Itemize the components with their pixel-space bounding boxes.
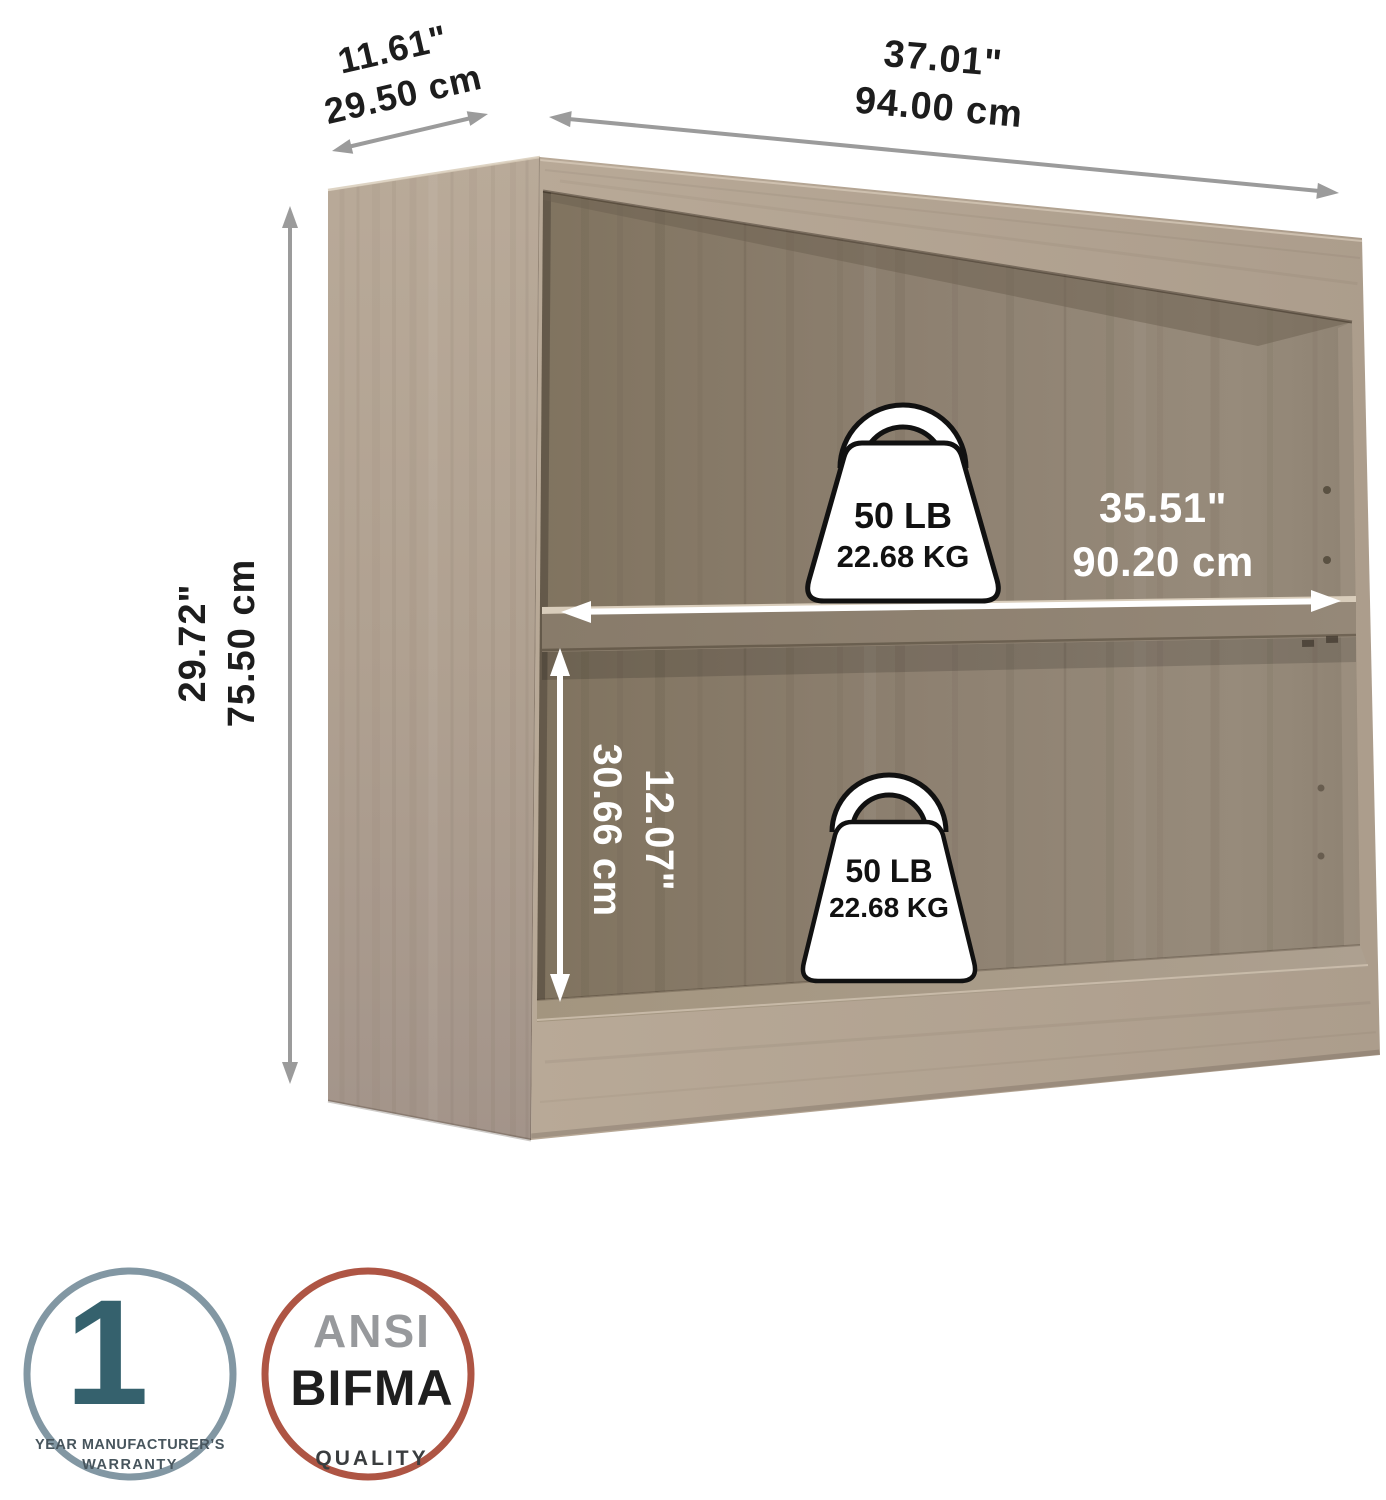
warranty-line2: WARRANTY [82,1455,178,1475]
warranty-line1: YEAR MANUFACTURER’S [35,1435,225,1455]
height-arrow [282,206,298,1084]
shelf-opening-height-label: 12.07" 30.66 cm [581,743,685,916]
shelf-opening-height-cm: 30.66 cm [581,743,633,916]
side-panel [328,140,540,1160]
warranty-number: 1 [65,1277,148,1427]
upper-shelf-capacity-label: 50 LB 22.68 KG [837,495,970,577]
quality-label: QUALITY [315,1447,428,1471]
lower-capacity-pounds: 50 LB [829,852,949,890]
shelf-width-cm: 90.20 cm [1072,535,1253,589]
width-dimension-label: 37.01" 94.00 cm [853,28,1029,140]
upper-capacity-pounds: 50 LB [837,495,970,537]
shelf-opening-height-inches: 12.07" [633,743,685,916]
height-cm: 75.50 cm [218,559,267,728]
lower-shelf-capacity-label: 50 LB 22.68 KG [829,852,949,926]
bookcase [328,140,1380,1160]
height-inches: 29.72" [169,559,218,728]
upper-capacity-kilograms: 22.68 KG [837,537,970,577]
product-dimension-diagram: 11.61" 29.50 cm 37.01" 94.00 cm 29.72" 7… [0,0,1386,1500]
height-dimension-label: 29.72" 75.50 cm [169,559,267,728]
bifma-label: BIFMA [290,1363,453,1413]
bookcase-illustration [0,0,1386,1500]
ansi-label: ANSI [313,1308,431,1354]
shelf-width-label: 35.51" 90.20 cm [1072,481,1253,589]
shelf-width-inches: 35.51" [1072,481,1253,535]
lower-capacity-kilograms: 22.68 KG [829,890,949,926]
